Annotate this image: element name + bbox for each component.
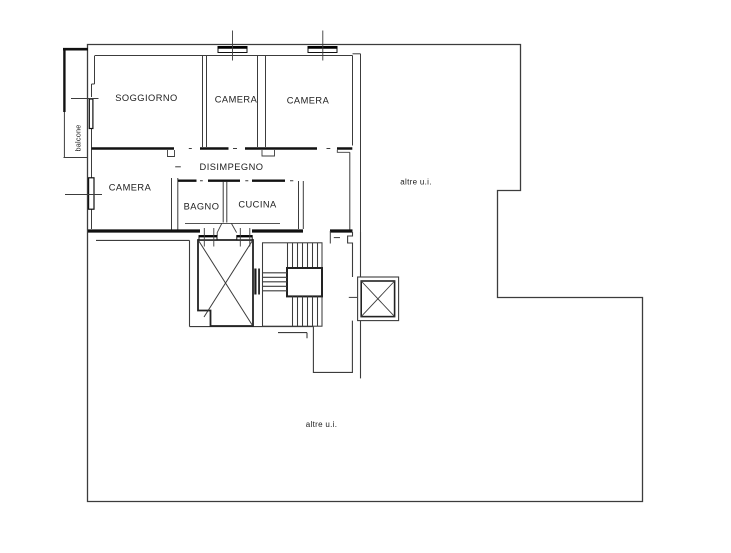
stair-door-icon xyxy=(254,269,260,295)
core-walls xyxy=(96,232,361,378)
shaft-cross-icon xyxy=(361,281,394,317)
stair-treads-left xyxy=(263,273,288,291)
floor-plan-canvas: SOGGIORNO CAMERA CAMERA CAMERA DISIMPEGN… xyxy=(0,0,731,553)
room-label-bagno: BAGNO xyxy=(184,202,220,212)
secondary-shaft xyxy=(349,277,399,321)
room-label-disimpegno: DISIMPEGNO xyxy=(200,162,264,172)
room-label-balcone: balcone xyxy=(74,125,83,152)
room-label-cucina: CUCINA xyxy=(238,200,277,210)
stair-treads-upper xyxy=(288,243,318,268)
building-outline xyxy=(88,45,643,502)
elevator-shaft xyxy=(198,240,253,326)
floor-plan-drawing: SOGGIORNO CAMERA CAMERA CAMERA DISIMPEGN… xyxy=(0,0,731,553)
stair-landing xyxy=(287,268,322,296)
interior-partitions xyxy=(203,54,361,232)
room-label-soggiorno: SOGGIORNO xyxy=(115,93,177,103)
camera-left-east-wall xyxy=(172,178,178,230)
bagno-vent-window-icon xyxy=(199,228,217,247)
balcony-door-icon xyxy=(71,99,99,129)
room-label-camera-top-2: CAMERA xyxy=(287,96,330,106)
north-wall xyxy=(95,54,361,56)
camera-left-window-icon xyxy=(65,178,102,209)
other-units-label-bottom: altre u.i. xyxy=(306,420,337,429)
shaft-cross-icon xyxy=(199,241,253,326)
room-label-camera-top-1: CAMERA xyxy=(215,95,258,105)
cucina-vent-window-icon xyxy=(237,228,253,247)
other-units-label-top: altre u.i. xyxy=(400,178,431,187)
room-label-camera-left: CAMERA xyxy=(109,183,152,193)
stair-treads-lower xyxy=(293,296,318,326)
staircase xyxy=(263,243,323,326)
